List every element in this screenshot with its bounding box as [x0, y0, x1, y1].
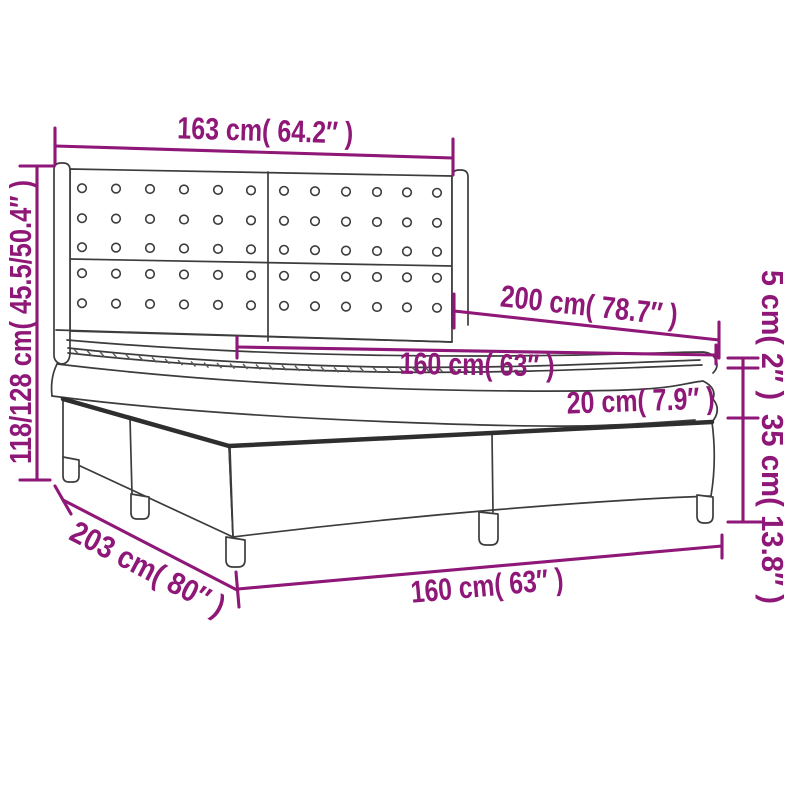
headboard-button — [433, 248, 442, 257]
headboard-button — [214, 271, 223, 280]
bed-diagram-svg: 163 cm( 64.2″ ) 118/128 cm( 45.5/50.4″ )… — [0, 0, 800, 800]
headboard-button — [373, 273, 382, 282]
headboard-button — [214, 216, 223, 225]
headboard-button — [146, 244, 155, 253]
headboard-button — [280, 272, 289, 281]
headboard-button — [403, 218, 412, 227]
headboard-button — [403, 188, 412, 197]
dim-mattress-width-label: 160 cm( 63″ ) — [399, 346, 555, 383]
headboard-button — [180, 215, 189, 224]
headboard-button — [247, 271, 256, 280]
dim-headboard-width: 163 cm( 64.2″ ) — [55, 110, 453, 175]
headboard-button — [112, 299, 121, 308]
headboard-button — [247, 216, 256, 225]
headboard-button — [280, 187, 289, 196]
headboard-button — [78, 243, 87, 252]
headboard-button — [433, 219, 442, 228]
headboard-panel — [70, 169, 452, 342]
headboard-button — [342, 302, 351, 311]
dim-right-heights: 5 cm( 2″ ) 35 cm( 13.8″ ) — [728, 270, 790, 604]
headboard-button — [214, 245, 223, 254]
headboard-button — [403, 247, 412, 256]
headboard-button — [311, 246, 320, 255]
box-spring-front-face — [229, 422, 714, 537]
headboard-button — [373, 303, 382, 312]
headboard-button — [311, 272, 320, 281]
dim-base-length-label: 203 cm( 80″ ) — [64, 514, 231, 624]
dim-mattress-width: 160 cm( 63″ ) — [237, 337, 716, 383]
dim-base-width-label: 160 cm( 63″ ) — [409, 561, 565, 609]
headboard-button — [280, 302, 289, 311]
headboard-button — [78, 184, 87, 193]
headboard-button — [247, 245, 256, 254]
dim-headboard-width-label: 163 cm( 64.2″ ) — [177, 110, 354, 150]
headboard-button — [247, 301, 256, 310]
bed-leg — [697, 495, 713, 523]
headboard-button — [311, 302, 320, 311]
headboard-button — [342, 246, 351, 255]
headboard-button — [433, 274, 442, 283]
headboard-button — [247, 186, 256, 195]
headboard-button — [373, 218, 382, 227]
headboard-button — [214, 186, 223, 195]
headboard-button — [146, 215, 155, 224]
dim-mattress-length: 200 cm( 78.7″ ) — [454, 278, 719, 358]
headboard-button — [214, 301, 223, 310]
box-front-divider-seam — [492, 434, 493, 512]
headboard-button — [342, 187, 351, 196]
dim-total-height: 118/128 cm( 45.5/50.4″ ) — [3, 166, 54, 480]
headboard-button — [433, 304, 442, 313]
headboard-button — [78, 214, 87, 223]
headboard-button — [403, 303, 412, 312]
headboard-button — [180, 270, 189, 279]
headboard-button — [280, 246, 289, 255]
headboard-button — [180, 244, 189, 253]
headboard-button — [112, 269, 121, 278]
product-dimension-diagram: 163 cm( 64.2″ ) 118/128 cm( 45.5/50.4″ )… — [0, 0, 800, 800]
headboard-button — [146, 185, 155, 194]
headboard-button — [78, 269, 87, 278]
headboard-button — [342, 272, 351, 281]
bed-leg — [479, 512, 498, 545]
headboard-button — [112, 184, 121, 193]
headboard-button — [180, 185, 189, 194]
headboard-button — [280, 217, 289, 226]
headboard-button — [311, 217, 320, 226]
dim-topper-thickness-label: 5 cm( 2″ ) — [755, 270, 790, 400]
dim-base-height-label: 35 cm( 13.8″ ) — [755, 414, 790, 604]
headboard-button — [112, 214, 121, 223]
headboard-button — [146, 300, 155, 309]
bed-leg — [226, 537, 245, 567]
headboard-button — [403, 273, 412, 282]
headboard-button — [78, 299, 87, 308]
headboard-button — [373, 188, 382, 197]
headboard-button — [433, 189, 442, 198]
bed-leg — [131, 494, 149, 519]
bed-leg — [63, 457, 79, 482]
headboard-button — [373, 247, 382, 256]
headboard-left-wing — [54, 163, 70, 364]
dim-total-height-label: 118/128 cm( 45.5/50.4″ ) — [3, 180, 38, 464]
headboard-button — [146, 270, 155, 279]
headboard-button — [311, 187, 320, 196]
dim-base-width: 160 cm( 63″ ) — [236, 535, 722, 610]
headboard-button — [112, 243, 121, 252]
dim-mattress-thickness-label: 20 cm( 7.9″ ) — [566, 380, 715, 420]
headboard-button — [342, 217, 351, 226]
headboard-button — [180, 300, 189, 309]
